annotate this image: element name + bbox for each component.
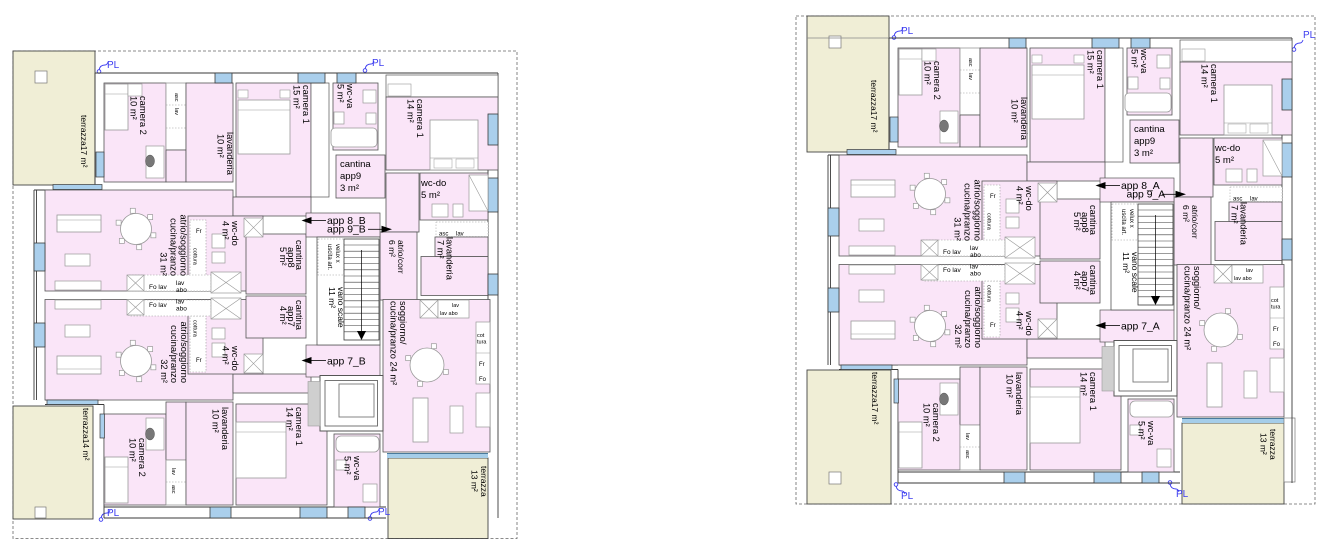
svg-text:lav abo: lav abo [1234, 276, 1252, 282]
svg-text:Fr: Fr [196, 358, 202, 364]
svg-text:abo: abo [970, 271, 981, 278]
svg-text:13 m²: 13 m² [1259, 433, 1269, 455]
svg-text:lav: lav [176, 280, 185, 287]
svg-text:PL: PL [378, 507, 391, 518]
svg-text:5 m²: 5 m² [336, 84, 346, 103]
svg-text:lav: lav [970, 264, 979, 271]
svg-text:soggiorno/: soggiorno/ [398, 301, 408, 345]
svg-text:lavanderia: lavanderia [220, 407, 230, 451]
svg-text:cottura: cottura [986, 285, 992, 303]
svg-text:14 m²: 14 m² [406, 99, 416, 123]
svg-text:lav abo: lav abo [440, 311, 458, 317]
svg-text:31 m²: 31 m² [953, 217, 963, 241]
svg-text:11 m²: 11 m² [1121, 252, 1131, 273]
svg-text:11 m²: 11 m² [327, 287, 337, 308]
svg-text:lav: lav [176, 299, 185, 306]
svg-text:5 m²: 5 m² [1072, 212, 1082, 231]
svg-text:4 m²: 4 m² [278, 306, 288, 325]
svg-text:tura: tura [1271, 305, 1281, 311]
svg-text:5 m²: 5 m² [1137, 421, 1147, 440]
svg-text:terrazza14 m²: terrazza14 m² [81, 408, 91, 461]
svg-text:7 m²: 7 m² [436, 240, 446, 259]
svg-text:camera 2: camera 2 [931, 403, 941, 442]
svg-text:wc-do: wc-do [1024, 310, 1034, 336]
svg-text:4 m²: 4 m² [1072, 271, 1082, 290]
svg-text:Fr: Fr [479, 362, 485, 368]
svg-text:10 m²: 10 m² [128, 438, 138, 462]
svg-text:wc-do: wc-do [1214, 143, 1240, 154]
svg-text:lav: lav [967, 73, 973, 80]
svg-text:camera 1: camera 1 [294, 407, 304, 446]
svg-text:32 m²: 32 m² [159, 359, 169, 383]
svg-text:atrio/soggiorno: atrio/soggiorno [973, 286, 983, 348]
svg-text:4 m²: 4 m² [221, 346, 231, 365]
svg-text:4 m²: 4 m² [1015, 311, 1025, 330]
svg-text:tura: tura [477, 340, 487, 346]
svg-text:5 m²: 5 m² [1215, 155, 1234, 166]
svg-text:14 m²: 14 m² [1200, 64, 1210, 88]
svg-text:Fr: Fr [990, 323, 996, 329]
svg-text:10 m²: 10 m² [129, 96, 139, 120]
svg-text:app9: app9 [1134, 136, 1155, 147]
svg-text:PL: PL [1303, 30, 1316, 41]
svg-text:wc-do: wc-do [230, 220, 240, 246]
svg-text:cucina/pranzo: cucina/pranzo [169, 218, 179, 276]
svg-text:camera 2: camera 2 [138, 96, 148, 135]
svg-text:abo: abo [176, 287, 187, 294]
svg-text:15 m²: 15 m² [1086, 50, 1096, 74]
svg-text:14 m²: 14 m² [285, 407, 295, 431]
svg-text:asc: asc [964, 450, 970, 459]
svg-text:10 m²: 10 m² [1005, 374, 1015, 398]
svg-text:Fo: Fo [1273, 342, 1281, 348]
svg-text:abo: abo [176, 306, 187, 313]
svg-text:velux x: velux x [1128, 209, 1134, 228]
svg-text:app 7_A: app 7_A [1121, 322, 1160, 333]
svg-text:5 m²: 5 m² [278, 247, 288, 266]
svg-text:PL: PL [901, 26, 914, 37]
svg-text:lav: lav [456, 232, 464, 238]
svg-text:PL: PL [107, 60, 120, 71]
svg-text:5 m²: 5 m² [1130, 49, 1140, 68]
svg-text:asc: asc [173, 93, 179, 102]
svg-text:wc-do: wc-do [230, 345, 240, 371]
svg-text:asc: asc [170, 485, 176, 494]
svg-text:7 m²: 7 m² [1230, 205, 1240, 224]
svg-text:3 m²: 3 m² [340, 183, 359, 194]
svg-text:Fr: Fr [196, 229, 202, 235]
svg-text:terrazza: terrazza [1268, 429, 1278, 460]
svg-text:PL: PL [901, 491, 914, 502]
svg-text:velux x: velux x [334, 244, 340, 263]
svg-text:15 m²: 15 m² [292, 85, 302, 109]
svg-text:cantina: cantina [1134, 124, 1165, 135]
svg-text:Fo lav: Fo lav [149, 302, 167, 309]
svg-text:Fo lav: Fo lav [943, 249, 961, 256]
svg-text:14 m²: 14 m² [1079, 372, 1089, 396]
svg-text:PL: PL [107, 508, 120, 519]
svg-text:Fo: Fo [479, 377, 487, 383]
svg-text:10 m²: 10 m² [1010, 99, 1020, 123]
svg-text:camera 2: camera 2 [932, 61, 942, 100]
svg-text:lav: lav [1246, 268, 1253, 274]
svg-text:cottura: cottura [192, 248, 198, 266]
svg-text:lavanderia: lavanderia [225, 132, 235, 176]
svg-text:app 9_A: app 9_A [1127, 190, 1166, 201]
svg-text:Fo lav: Fo lav [943, 267, 961, 274]
svg-text:31 m²: 31 m² [159, 252, 169, 276]
svg-text:cottura: cottura [192, 320, 198, 338]
svg-text:32 m²: 32 m² [953, 324, 963, 348]
svg-text:app9: app9 [340, 171, 361, 182]
svg-text:5 m²: 5 m² [421, 190, 440, 201]
svg-text:camera 1: camera 1 [415, 99, 425, 138]
svg-text:10 m²: 10 m² [922, 403, 932, 427]
svg-text:lav: lav [170, 468, 176, 475]
svg-text:camera 1: camera 1 [1088, 372, 1098, 411]
svg-text:4 m²: 4 m² [1015, 186, 1025, 205]
svg-text:wc-do: wc-do [1024, 185, 1034, 211]
svg-text:terrazza17 m²: terrazza17 m² [870, 372, 880, 425]
svg-text:cucina/pranzo: cucina/pranzo [963, 290, 973, 348]
svg-text:terrazza17 m²: terrazza17 m² [79, 115, 89, 168]
svg-text:PL: PL [372, 58, 385, 69]
svg-text:cucina/pranzo: cucina/pranzo [169, 325, 179, 383]
svg-text:camera 1: camera 1 [1209, 64, 1219, 103]
svg-text:10 m²: 10 m² [923, 61, 933, 85]
svg-text:cottura: cottura [986, 213, 992, 231]
svg-text:cucina/pranzo 24 m²: cucina/pranzo 24 m² [1183, 266, 1193, 350]
svg-text:13 m²: 13 m² [470, 470, 480, 492]
svg-text:wc-va: wc-va [352, 455, 362, 481]
svg-text:lav: lav [970, 245, 979, 252]
svg-text:atrio/soggiorno: atrio/soggiorno [179, 321, 189, 383]
svg-text:abo: abo [970, 252, 981, 259]
svg-text:camera 1: camera 1 [1095, 50, 1105, 89]
svg-text:6 m²: 6 m² [1181, 205, 1191, 222]
svg-text:Fr: Fr [990, 194, 996, 200]
svg-text:terrazza17 m²: terrazza17 m² [869, 80, 879, 133]
svg-text:cucina/pranzo 24 m²: cucina/pranzo 24 m² [389, 301, 399, 385]
svg-text:6 m²: 6 m² [387, 240, 397, 257]
svg-text:camera 2: camera 2 [137, 438, 147, 477]
svg-text:app 9_B: app 9_B [327, 225, 366, 236]
svg-text:cot: cot [1271, 298, 1279, 304]
svg-text:lav: lav [173, 108, 179, 115]
svg-text:atrio/soggiorno: atrio/soggiorno [973, 179, 983, 241]
svg-text:lav: lav [964, 433, 970, 440]
svg-text:4 m²: 4 m² [221, 221, 231, 240]
svg-text:atrio/soggiorno: atrio/soggiorno [179, 214, 189, 276]
svg-text:uscita art.: uscita art. [1120, 209, 1126, 235]
svg-text:lavanderia: lavanderia [1019, 97, 1029, 141]
svg-text:10 m²: 10 m² [216, 134, 226, 158]
svg-text:wc-va: wc-va [1139, 48, 1149, 74]
svg-text:10 m²: 10 m² [211, 409, 221, 433]
svg-text:lav: lav [1250, 197, 1258, 203]
svg-text:uscita art.: uscita art. [326, 244, 332, 270]
svg-text:lav: lav [452, 303, 459, 309]
svg-text:cot: cot [477, 333, 485, 339]
svg-text:wc-va: wc-va [1146, 420, 1156, 446]
svg-text:camera 1: camera 1 [301, 85, 311, 124]
svg-text:wc-do: wc-do [420, 178, 446, 189]
svg-text:Fr: Fr [1273, 327, 1279, 333]
svg-text:terrazza: terrazza [479, 466, 489, 497]
svg-text:cantina: cantina [340, 159, 371, 170]
svg-text:5 m²: 5 m² [343, 456, 353, 475]
svg-text:3 m²: 3 m² [1134, 148, 1153, 159]
svg-text:asc: asc [967, 58, 973, 67]
svg-text:app 7_B: app 7_B [327, 357, 366, 368]
svg-text:wc-va: wc-va [345, 83, 355, 109]
svg-text:soggiorno/: soggiorno/ [1192, 266, 1202, 310]
svg-text:cucina/pranzo: cucina/pranzo [963, 183, 973, 241]
svg-text:Fo lav: Fo lav [149, 284, 167, 291]
svg-text:lavanderia: lavanderia [1014, 372, 1024, 416]
